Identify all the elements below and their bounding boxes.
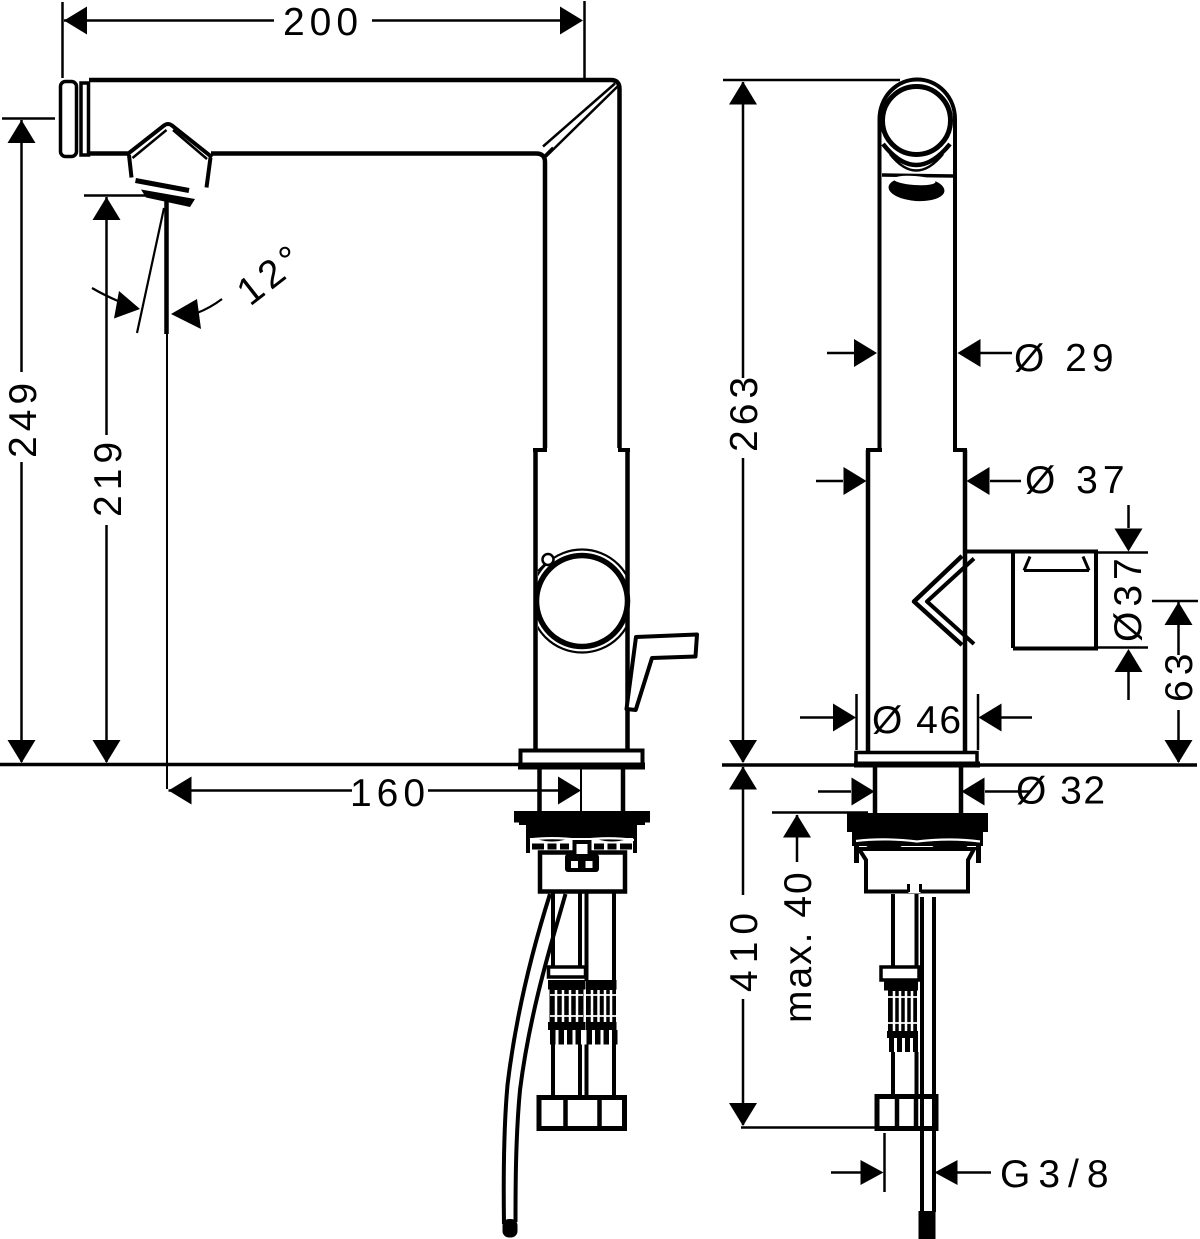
- svg-text:219: 219: [87, 437, 130, 517]
- svg-text:Ø 29: Ø 29: [1014, 337, 1119, 380]
- svg-text:160: 160: [350, 772, 430, 815]
- svg-text:Ø 37: Ø 37: [1025, 459, 1130, 502]
- svg-text:410: 410: [723, 906, 766, 992]
- svg-text:200: 200: [283, 1, 363, 44]
- svg-text:Ø37: Ø37: [1107, 553, 1150, 642]
- svg-text:max. 40: max. 40: [777, 870, 820, 1023]
- svg-text:Ø 46: Ø 46: [872, 699, 963, 742]
- svg-text:263: 263: [723, 372, 766, 452]
- svg-text:249: 249: [2, 378, 45, 458]
- svg-text:63: 63: [1158, 649, 1200, 702]
- svg-text:Ø 32: Ø 32: [1016, 770, 1107, 813]
- svg-text:12°: 12°: [229, 235, 314, 314]
- svg-text:G3/8: G3/8: [1000, 1153, 1117, 1196]
